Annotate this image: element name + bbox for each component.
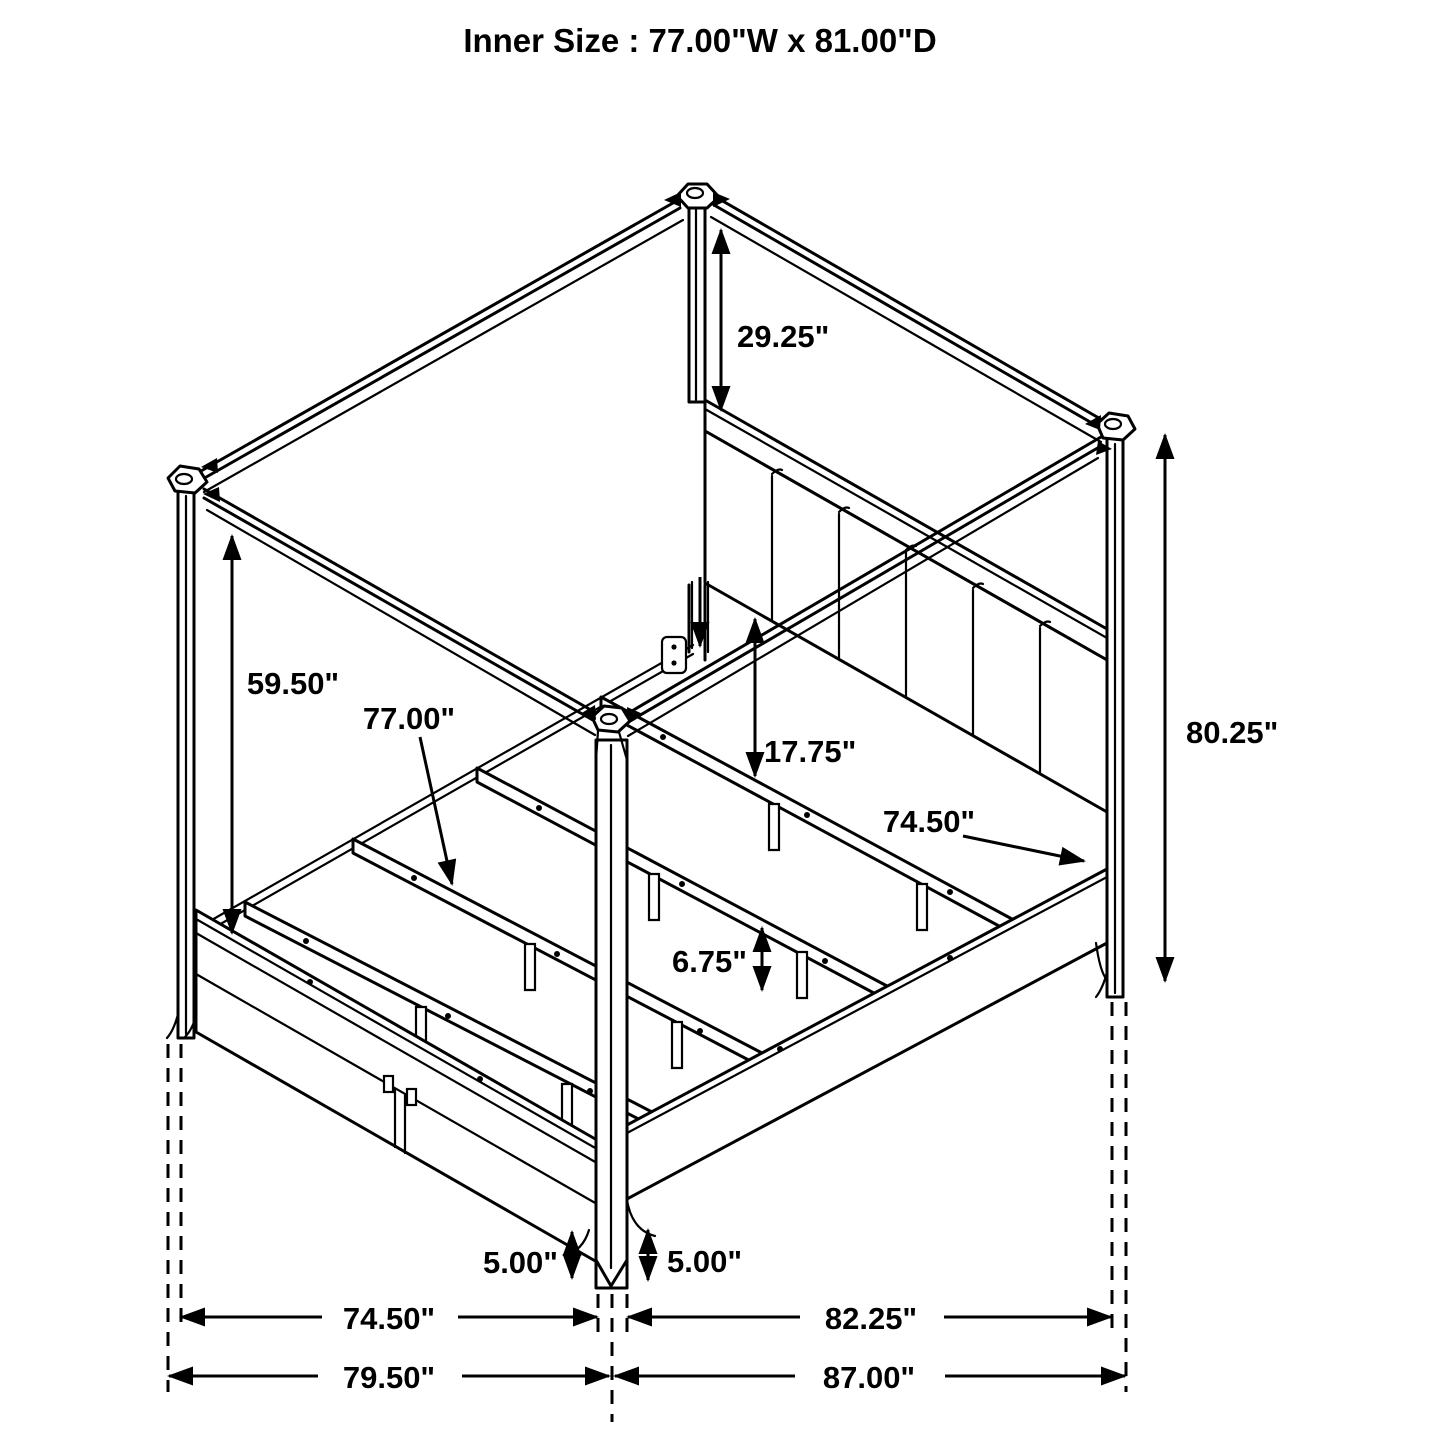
bed-dimension-diagram: Inner Size : 77.00"W x 81.00"D [0, 0, 1445, 1445]
dim-foot-height-left-label: 5.00" [483, 1245, 558, 1280]
dimension-post-above-headboard: 29.25" [721, 230, 829, 410]
dimension-side-rail-length: 74.50" [883, 804, 1084, 861]
dim-foot-height-right-label: 5.00" [667, 1244, 742, 1279]
dim-canopy-clearance-label: 59.50" [247, 666, 339, 701]
dimension-post-height: 80.25" [1165, 435, 1278, 981]
dim-side-rail-length-label: 74.50" [883, 804, 975, 839]
dimension-siderail-span-inner: 82.25" [628, 1301, 1111, 1336]
front-post [596, 740, 627, 1288]
dim-slat-leg-height-label: 6.75" [672, 944, 747, 979]
dim-post-above-headboard-label: 29.25" [737, 319, 829, 354]
dimension-slat-leg-height: 6.75" [672, 928, 762, 990]
dim-post-height-label: 80.25" [1186, 715, 1278, 750]
dim-siderail-span-inner-label: 82.25" [825, 1301, 917, 1336]
left-post [167, 490, 194, 1038]
dim-slat-length-label: 77.00" [363, 701, 455, 736]
dimension-foot-height-right: 5.00" [648, 1230, 742, 1280]
inner-size-title: Inner Size : 77.00"W x 81.00"D [463, 22, 936, 59]
diagram-canvas: Inner Size : 77.00"W x 81.00"D [0, 0, 1445, 1445]
dim-overall-width-label: 79.50" [343, 1360, 435, 1395]
dimension-footboard-span-inner: 74.50" [181, 1301, 597, 1336]
right-side-rail [612, 869, 1107, 1236]
dim-overall-depth-label: 87.00" [823, 1360, 915, 1395]
dimension-canopy-clearance: 59.50" [232, 536, 339, 933]
dim-headboard-to-deck-label: 17.75" [764, 734, 856, 769]
dimension-overall-depth: 87.00" [615, 1360, 1125, 1395]
dim-footboard-span-inner-label: 74.50" [343, 1301, 435, 1336]
dimension-overall-width: 79.50" [169, 1360, 609, 1395]
